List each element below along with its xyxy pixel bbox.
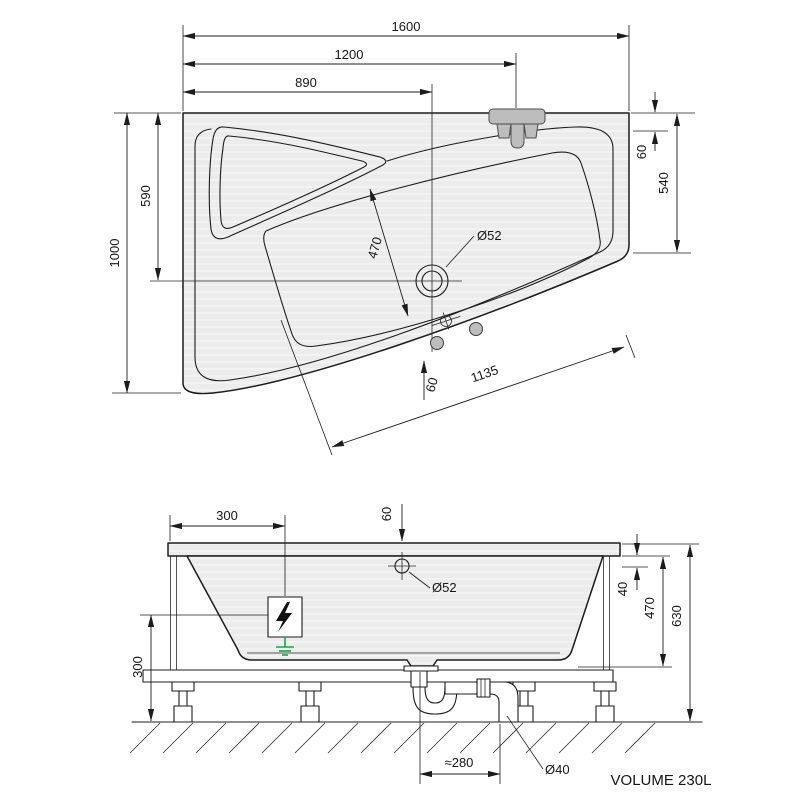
frame-leg	[594, 682, 616, 722]
bathtub-dimension-drawing: 1600 1200 890 1000 590	[0, 0, 800, 800]
electric-connection-box	[268, 597, 302, 637]
dim-drain-position-x-label: 890	[295, 75, 317, 90]
dim-right-side-length-label: 540	[656, 172, 671, 194]
dim-drain-position-y: 590	[138, 113, 158, 280]
dim-front-edge-offset-label: 60	[422, 376, 440, 394]
frame-rail	[143, 670, 613, 682]
dim-overall-width: 1000	[107, 113, 181, 393]
dim-overflow-top-offset: 60	[379, 504, 402, 541]
frame-leg	[172, 682, 194, 722]
dim-front-edge-offset: 60	[422, 361, 440, 400]
dim-faucet-position: 1200	[183, 47, 516, 108]
dim-electric-box-offset-label: 300	[216, 508, 238, 523]
dim-overall-height-label: 630	[669, 605, 684, 627]
dim-rim-offset-right: 60	[631, 92, 695, 159]
dim-overall-length-label: 1600	[392, 19, 421, 34]
top-view: 1600 1200 890 1000 590	[107, 19, 695, 455]
dim-overflow-diameter-label: Ø52	[432, 580, 457, 595]
dim-shell-depth-label: 470	[642, 597, 657, 619]
side-view-tub-body	[187, 556, 603, 666]
dim-overall-width-label: 1000	[107, 239, 122, 268]
dim-faucet-position-label: 1200	[335, 47, 364, 62]
dim-waste-pipe-diameter-label: Ø40	[545, 762, 570, 777]
dim-rim-drop: 40	[615, 534, 670, 596]
jet-icon	[470, 323, 483, 336]
dim-waste-pipe-diameter: Ø40	[507, 716, 570, 777]
jet-icon	[431, 337, 444, 350]
dim-rim-offset-right-label: 60	[634, 145, 649, 159]
dim-rim-drop-label: 40	[615, 582, 630, 596]
dim-drain-diameter-label: Ø52	[477, 228, 502, 243]
side-view-rim	[168, 543, 620, 556]
dim-drain-position-x: 890	[183, 75, 432, 92]
dim-clearance-height-label: 300	[130, 656, 145, 678]
dim-overflow-top-offset-label: 60	[379, 507, 394, 521]
dim-front-edge-length-label: 1135	[469, 362, 500, 385]
side-view: 300 60 Ø52 40 470 630	[130, 504, 711, 789]
dim-drain-position-y-label: 590	[138, 185, 153, 207]
dim-waste-horizontal-offset-label: ≈280	[445, 755, 474, 770]
dim-overall-height: 630	[622, 544, 699, 721]
floor-hatching	[130, 723, 655, 753]
dim-right-side-length: 540	[633, 114, 691, 253]
technical-drawing-sheet: 1600 1200 890 1000 590	[0, 0, 800, 800]
frame-leg	[299, 682, 321, 722]
dim-overall-length: 1600	[183, 19, 629, 111]
volume-note: VOLUME 230L	[611, 772, 712, 789]
